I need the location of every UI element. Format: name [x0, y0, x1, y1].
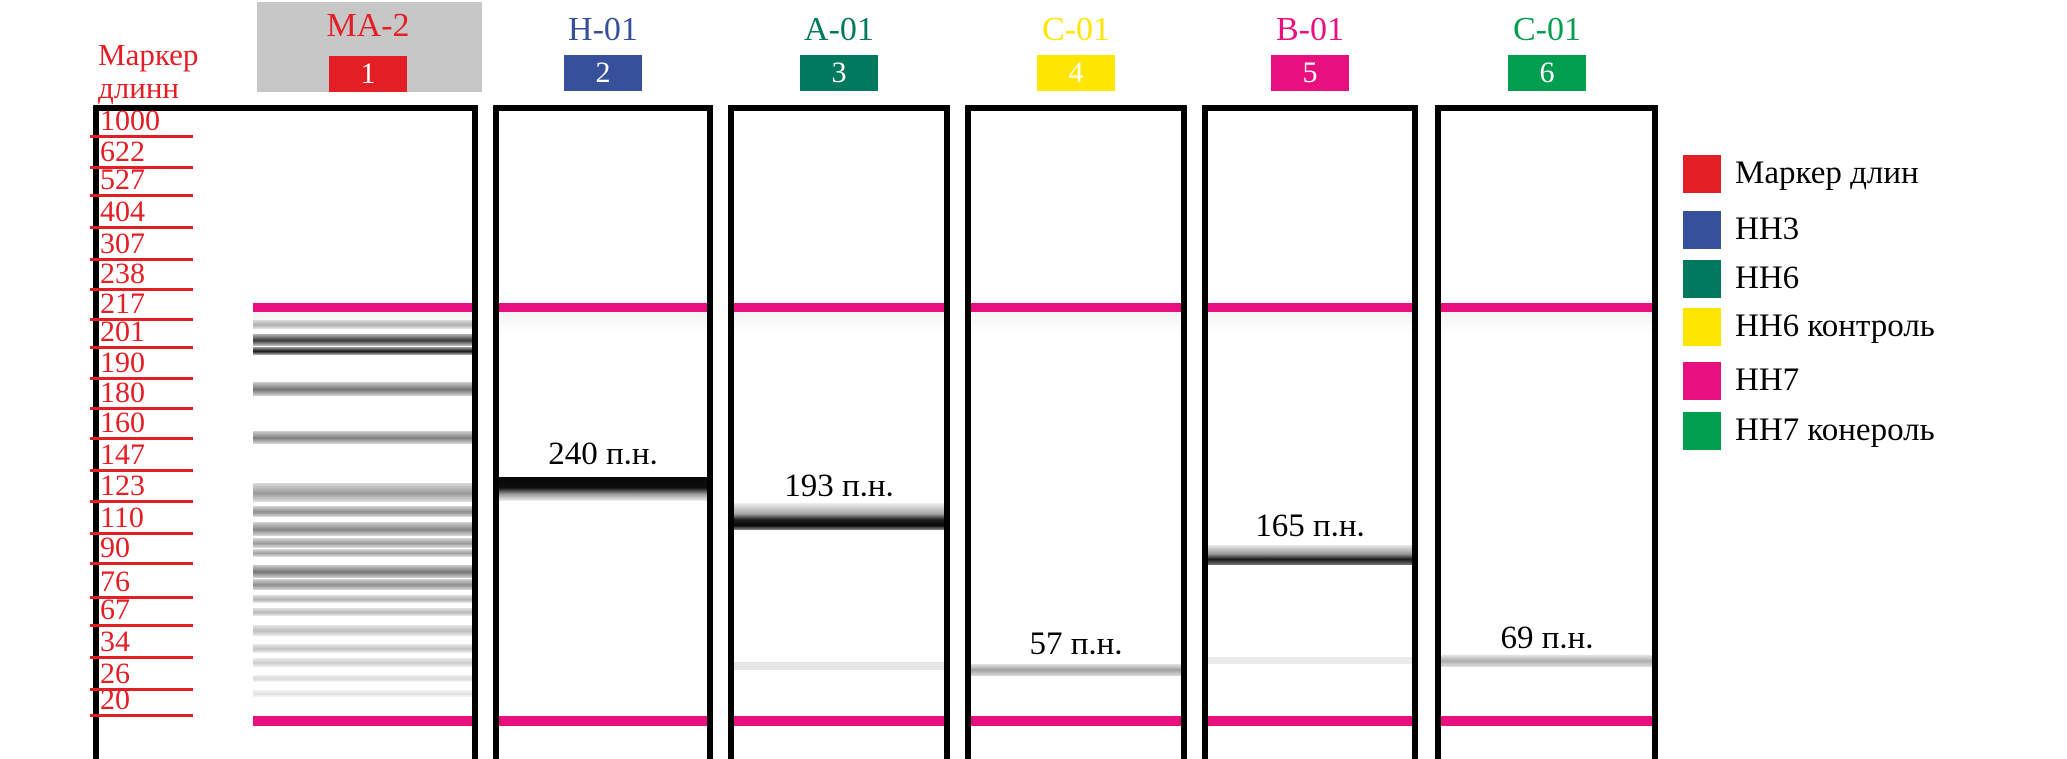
legend-color-swatch	[1683, 211, 1721, 249]
lane-well-number: 6	[1508, 55, 1586, 91]
lane-sample-label: С-01	[1437, 12, 1657, 48]
lane-gel-box	[493, 105, 713, 759]
sample-band-size-label: 193 п.н.	[729, 469, 949, 503]
legend-item-label: НН6 контроль	[1735, 306, 1935, 346]
ladder-band	[253, 483, 472, 502]
lane-sample-label: С-01	[966, 12, 1186, 48]
ladder-band	[253, 538, 472, 548]
upper-alignment-marker-band	[1441, 303, 1652, 312]
lower-alignment-marker-band	[253, 716, 472, 726]
ladder-band	[253, 522, 472, 536]
lower-alignment-marker-band	[499, 716, 707, 726]
ladder-size-label: 90	[90, 532, 193, 565]
sample-band	[734, 503, 944, 530]
ladder-band	[253, 690, 472, 697]
marker-axis-title-line1: Маркер	[98, 38, 198, 71]
ladder-size-label: 527	[90, 164, 193, 197]
upper-alignment-marker-band	[253, 303, 472, 312]
sample-band-size-label: 57 п.н.	[966, 627, 1186, 661]
legend-item-label: НН3	[1735, 209, 1799, 249]
ladder-band	[253, 347, 472, 355]
legend-item-label: Маркер длин	[1735, 153, 1919, 193]
marker-axis-title-line2: длинн	[98, 71, 198, 104]
ladder-band	[253, 506, 472, 517]
lane-background-wash	[971, 312, 1181, 334]
sample-band	[971, 664, 1181, 676]
ladder-size-label: 201	[90, 316, 193, 349]
ladder-size-label: 123	[90, 470, 193, 503]
sample-band-size-label: 240 п.н.	[493, 437, 713, 471]
ladder-size-label: 34	[90, 626, 193, 659]
lane-sample-label: Н-01	[493, 12, 713, 48]
lane-sample-label: А-01	[729, 12, 949, 48]
lane-background-wash	[734, 312, 944, 334]
lower-alignment-marker-band	[734, 716, 944, 726]
ladder-size-label: 147	[90, 439, 193, 472]
ladder-band	[253, 658, 472, 667]
faint-band	[734, 662, 944, 670]
ladder-size-label: 404	[90, 196, 193, 229]
ladder-band	[253, 334, 472, 346]
lane-gel-box	[728, 105, 950, 759]
ladder-band	[253, 382, 472, 396]
ladder-band	[253, 675, 472, 682]
sample-band-size-label: 165 п.н.	[1200, 509, 1420, 543]
legend-color-swatch	[1683, 308, 1721, 346]
ladder-band	[253, 565, 472, 578]
legend-item-label: НН7	[1735, 360, 1799, 400]
lane-sample-label: В-01	[1200, 12, 1420, 48]
lane-well-number: 5	[1271, 55, 1349, 91]
lane-well-number: 4	[1037, 55, 1115, 91]
faint-band	[1208, 657, 1412, 664]
legend-color-swatch	[1683, 362, 1721, 400]
legend-color-swatch	[1683, 260, 1721, 298]
upper-alignment-marker-band	[734, 303, 944, 312]
ladder-band	[253, 595, 472, 603]
upper-alignment-marker-band	[971, 303, 1181, 312]
ladder-size-label: 20	[90, 684, 193, 717]
gel-electrophoresis-figure: Маркер длинн Маркер длинНН3НН6НН6 контро…	[0, 0, 2067, 759]
ladder-band	[253, 431, 472, 444]
sample-band-size-label: 69 п.н.	[1437, 621, 1657, 655]
lane-background-wash	[1441, 312, 1652, 334]
lane-sample-label: МА-2	[258, 8, 478, 44]
sample-band	[1441, 655, 1652, 667]
ladder-size-label: 67	[90, 594, 193, 627]
ladder-band	[253, 644, 472, 653]
ladder-band	[253, 625, 472, 636]
lower-alignment-marker-band	[1441, 716, 1652, 726]
ladder-size-label: 160	[90, 407, 193, 440]
lane-background-wash	[1208, 312, 1412, 334]
ladder-band	[253, 549, 472, 557]
lane-background-wash	[499, 312, 707, 334]
upper-alignment-marker-band	[1208, 303, 1412, 312]
lower-alignment-marker-band	[1208, 716, 1412, 726]
lane-well-number: 2	[564, 55, 642, 91]
lane-well-number: 3	[800, 55, 878, 91]
legend-item-label: НН7 конероль	[1735, 410, 1935, 450]
ladder-size-label: 1000	[90, 105, 193, 138]
ladder-band	[253, 320, 472, 329]
marker-axis-title: Маркер длинн	[98, 38, 198, 104]
legend-color-swatch	[1683, 412, 1721, 450]
ladder-band	[253, 579, 472, 590]
lane-well-number: 1	[329, 56, 407, 92]
upper-alignment-marker-band	[499, 303, 707, 312]
sample-band	[499, 477, 707, 501]
legend-color-swatch	[1683, 155, 1721, 193]
sample-band	[1208, 545, 1412, 565]
ladder-band	[253, 608, 472, 616]
lower-alignment-marker-band	[971, 716, 1181, 726]
legend-item-label: НН6	[1735, 258, 1799, 298]
